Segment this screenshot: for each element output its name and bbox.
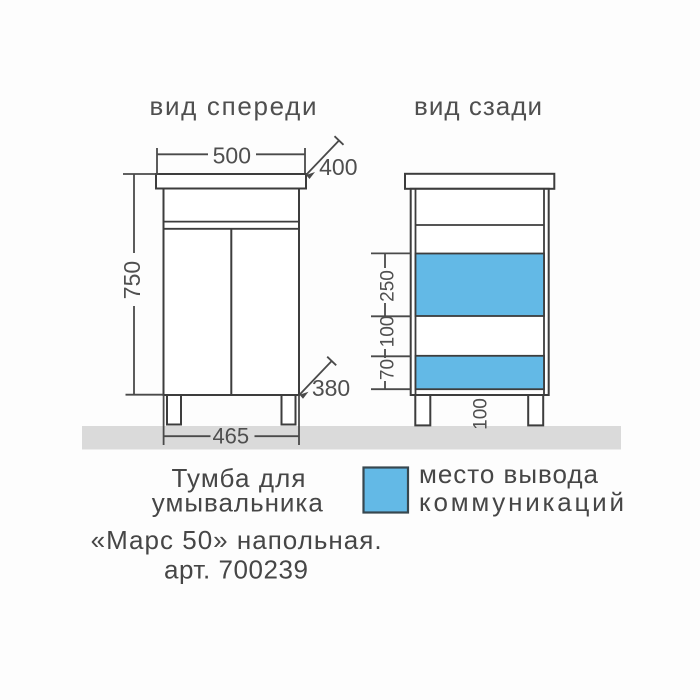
svg-text:380: 380 (312, 375, 350, 401)
svg-text:умывальника: умывальника (152, 488, 324, 518)
svg-text:место вывода: место вывода (419, 459, 599, 489)
svg-text:коммуникаций: коммуникаций (419, 487, 624, 517)
svg-text:400: 400 (319, 154, 357, 180)
svg-text:100: 100 (471, 398, 492, 430)
svg-text:арт. 700239: арт. 700239 (164, 555, 308, 585)
svg-text:вид сзади: вид сзади (414, 91, 542, 121)
svg-text:70: 70 (378, 359, 399, 380)
svg-text:100: 100 (378, 316, 399, 348)
svg-text:500: 500 (213, 142, 251, 168)
svg-text:вид спереди: вид спереди (150, 91, 317, 121)
svg-text:«Марс 50» напольная.: «Марс 50» напольная. (91, 525, 382, 555)
svg-text:465: 465 (212, 424, 249, 449)
svg-text:750: 750 (119, 261, 145, 299)
svg-text:250: 250 (378, 270, 399, 302)
